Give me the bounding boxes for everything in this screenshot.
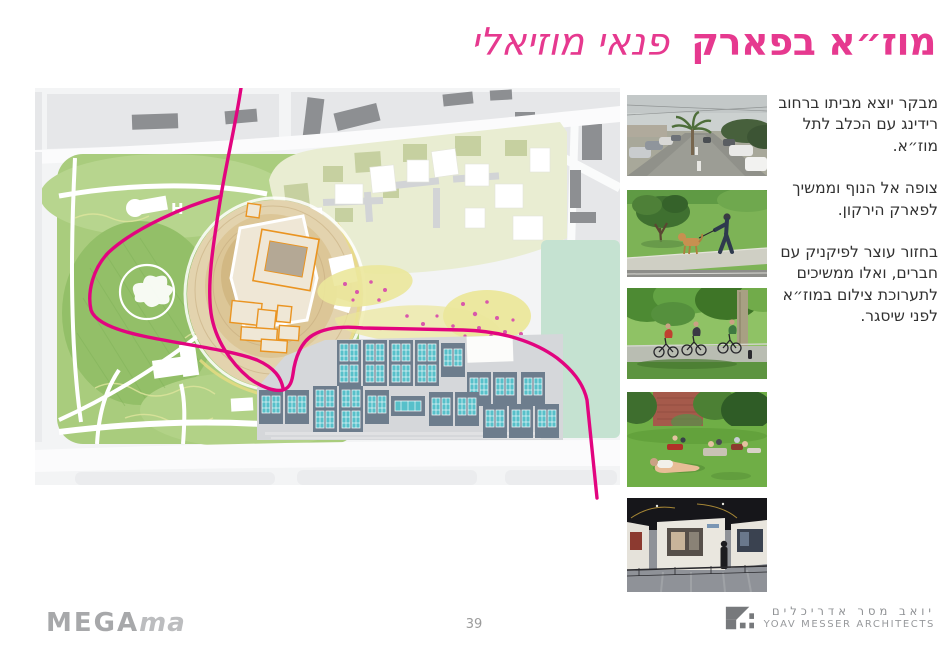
visitor-silhouette — [721, 541, 728, 569]
narrative-paragraph-2: צופה אל הנוף וממשיך לפארק הירקון. — [775, 178, 938, 221]
page-title: מוז״א בפארק פנאי מוזיאלי — [471, 22, 936, 64]
site-plan-svg: H — [35, 88, 620, 500]
presentation-slide: מוז״א בפארק פנאי מוזיאלי — [0, 0, 948, 670]
architect-logo-mark — [724, 604, 754, 632]
architect-logo: יואב מסר אדריכלים YOAV MESSER ARCHITECTS — [724, 604, 935, 632]
photo-picnic — [627, 392, 767, 487]
photo-street-view — [627, 95, 767, 176]
photo-cyclists — [627, 288, 767, 379]
title-bold: מוז״א בפארק — [691, 20, 936, 64]
narrative-text: מבקר יוצא מביתו ברחוב רידינג עם הכלב לתל… — [775, 93, 938, 348]
site-plan-map: H — [35, 88, 620, 500]
title-light: פנאי מוזיאלי — [471, 20, 669, 64]
photo-exhibition — [627, 498, 767, 592]
narrative-paragraph-1: מבקר יוצא מביתו ברחוב רידינג עם הכלב לתל… — [775, 93, 938, 157]
architect-name-hebrew: יואב מסר אדריכלים — [764, 605, 935, 619]
architect-name-english: YOAV MESSER ARCHITECTS — [764, 618, 935, 631]
fair-buildings-complex — [257, 334, 563, 440]
photo-dog-walk — [627, 190, 767, 277]
narrative-paragraph-3: בחזור עוצר לפיקניק עם חברים, ואלו ממשיכי… — [775, 242, 938, 328]
